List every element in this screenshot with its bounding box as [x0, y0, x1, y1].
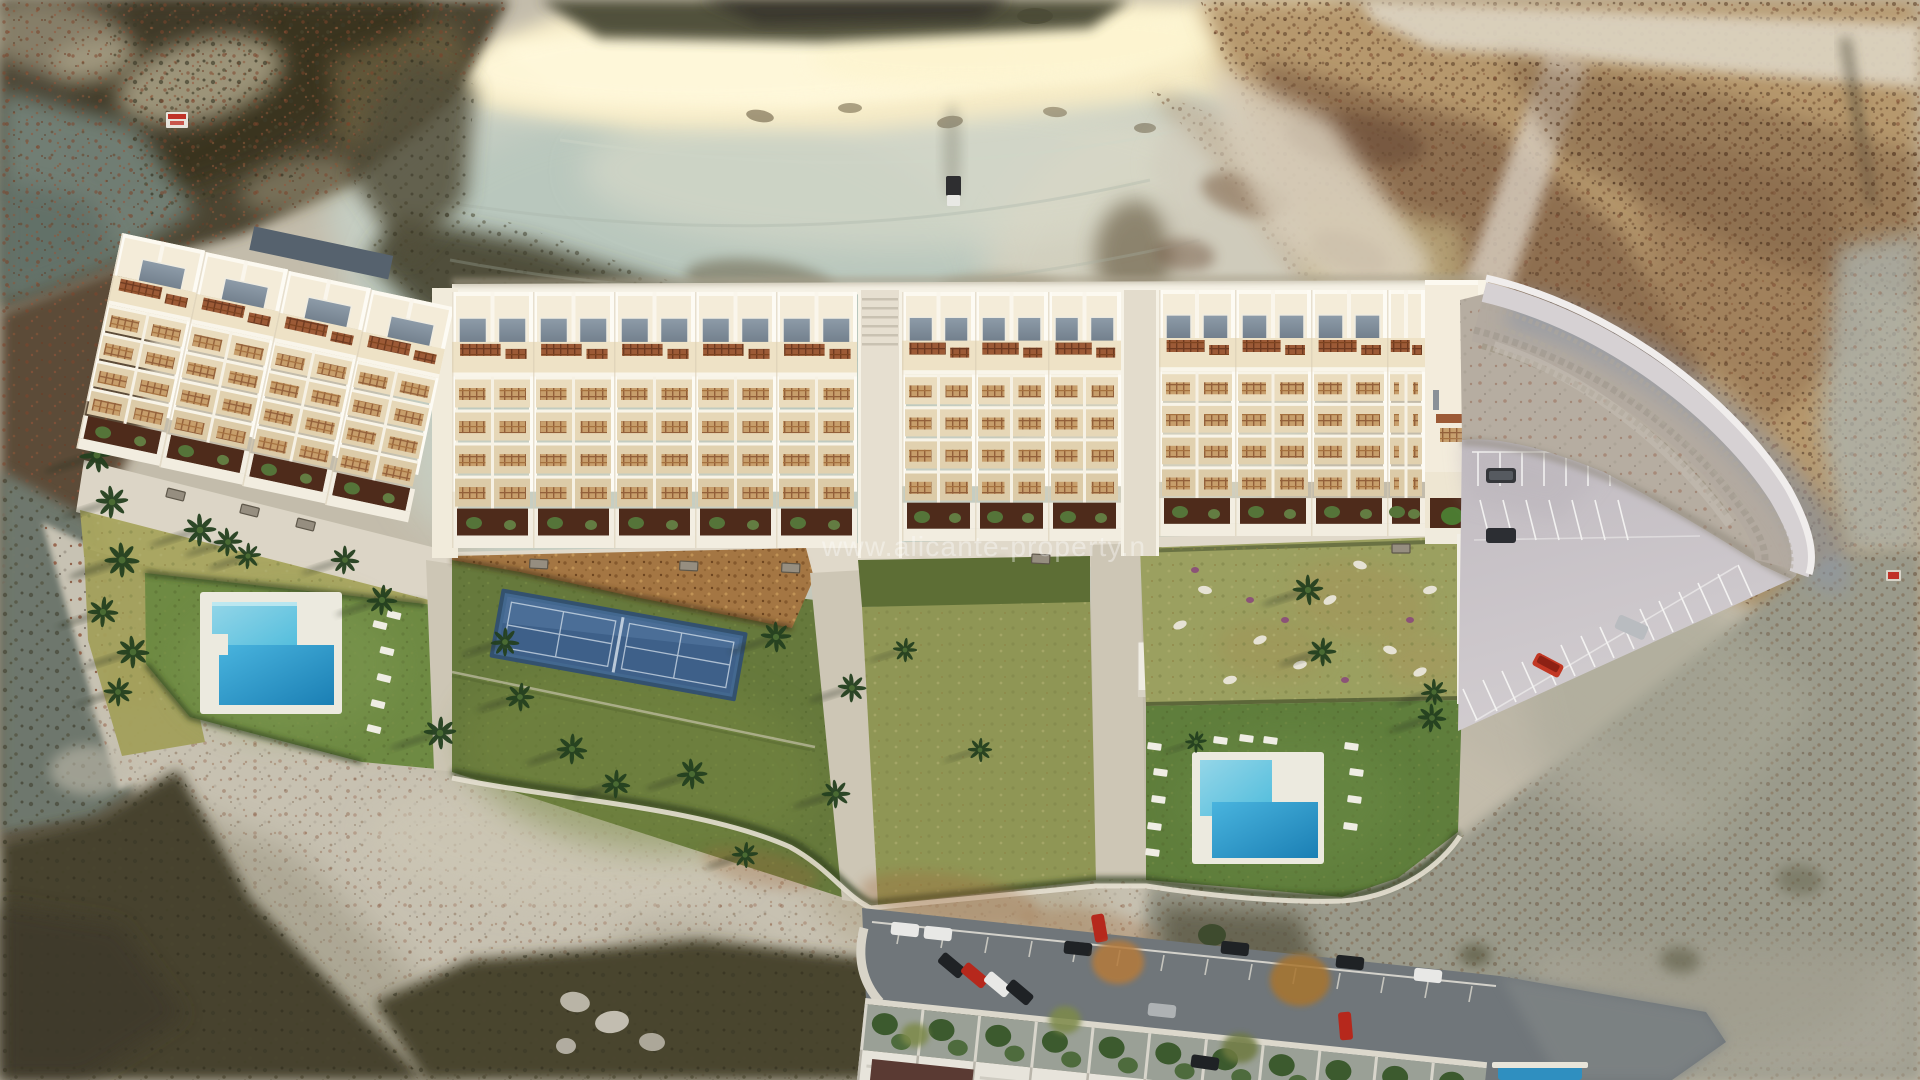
svg-text:www.alicante-property.n: www.alicante-property.n — [821, 531, 1146, 562]
